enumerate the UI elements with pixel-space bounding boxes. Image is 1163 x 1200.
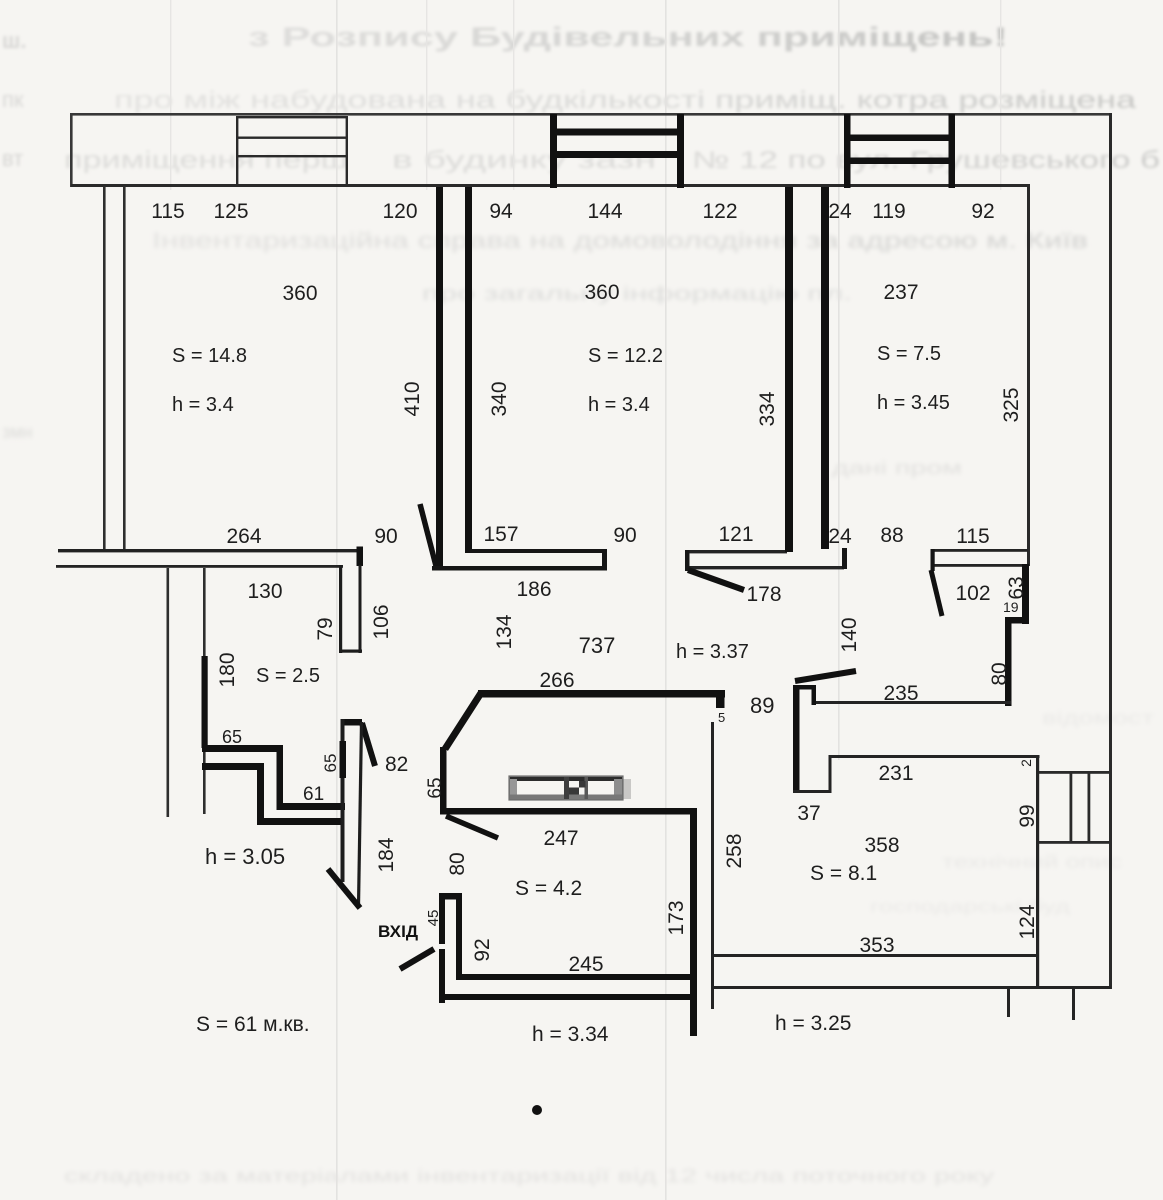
svg-text:змн: змн <box>2 422 33 442</box>
svg-text:2: 2 <box>1018 759 1034 767</box>
svg-text:340: 340 <box>488 381 511 416</box>
svg-text:94: 94 <box>489 200 513 223</box>
svg-text:з Розпису Будівельних приміщен: з Розпису Будівельних приміщень! <box>248 22 1008 52</box>
svg-text:186: 186 <box>516 578 551 601</box>
svg-text:h = 3.34: h = 3.34 <box>532 1023 609 1046</box>
svg-text:h = 3.4: h = 3.4 <box>172 394 234 416</box>
svg-text:178: 178 <box>746 583 781 606</box>
svg-text:відомост: відомост <box>1042 708 1154 728</box>
svg-text:S = 2.5: S = 2.5 <box>256 665 320 687</box>
svg-text:102: 102 <box>955 582 990 605</box>
svg-text:65: 65 <box>425 777 446 798</box>
svg-text:5: 5 <box>718 710 725 725</box>
svg-text:79: 79 <box>314 617 337 640</box>
svg-text:115: 115 <box>956 525 989 548</box>
svg-text:124: 124 <box>1016 904 1039 939</box>
svg-text:122: 122 <box>702 200 737 223</box>
svg-text:92: 92 <box>471 938 494 961</box>
svg-text:89: 89 <box>750 693 774 718</box>
svg-text:дані пром: дані пром <box>832 458 962 478</box>
svg-text:258: 258 <box>723 833 746 868</box>
svg-text:технічний опис: технічний опис <box>942 852 1122 872</box>
svg-text:пк: пк <box>2 87 24 112</box>
svg-text:господарські буд: господарські буд <box>870 897 1070 916</box>
svg-text:360: 360 <box>584 281 619 304</box>
svg-text:82: 82 <box>385 753 408 776</box>
svg-text:45: 45 <box>425 910 442 927</box>
svg-text:90: 90 <box>374 525 397 548</box>
svg-text:90: 90 <box>613 524 636 547</box>
svg-text:h = 3.4: h = 3.4 <box>588 394 650 416</box>
svg-text:125: 125 <box>213 200 248 223</box>
svg-text:184: 184 <box>375 837 398 872</box>
svg-text:S = 12.2: S = 12.2 <box>588 345 663 367</box>
svg-text:S = 4.2: S = 4.2 <box>515 877 582 900</box>
svg-text:144: 144 <box>587 200 622 223</box>
svg-text:h = 3.37: h = 3.37 <box>676 641 749 663</box>
svg-text:358: 358 <box>864 834 899 857</box>
svg-text:120: 120 <box>382 200 417 223</box>
svg-text:130: 130 <box>247 580 282 603</box>
svg-text:410: 410 <box>401 381 424 416</box>
svg-text:173: 173 <box>665 900 688 935</box>
svg-text:88: 88 <box>880 524 903 547</box>
svg-text:складено за матеріалами інвент: складено за матеріалами інвентаризації в… <box>64 1166 994 1186</box>
svg-text:приміщення перш: приміщення перш <box>64 147 348 174</box>
svg-text:80: 80 <box>446 852 469 875</box>
svg-text:S = 7.5: S = 7.5 <box>877 343 941 365</box>
svg-text:180: 180 <box>216 652 239 687</box>
svg-text:61: 61 <box>303 784 324 805</box>
svg-text:S = 14.8: S = 14.8 <box>172 345 247 367</box>
svg-text:Інвентаризаційна справа на дом: Інвентаризаційна справа на домоволодіння… <box>152 228 1088 253</box>
svg-text:24: 24 <box>828 200 852 223</box>
svg-text:119: 119 <box>872 200 905 223</box>
svg-text:h = 3.05: h = 3.05 <box>205 844 285 869</box>
svg-text:37: 37 <box>797 802 820 825</box>
svg-text:737: 737 <box>579 633 616 658</box>
svg-text:24: 24 <box>828 525 852 548</box>
svg-text:237: 237 <box>883 281 918 304</box>
svg-text:247: 247 <box>543 827 578 850</box>
svg-text:106: 106 <box>370 604 393 639</box>
svg-text:19: 19 <box>1003 599 1019 615</box>
svg-text:65: 65 <box>222 727 242 747</box>
svg-text:92: 92 <box>971 200 994 223</box>
svg-text:99: 99 <box>1016 804 1039 827</box>
svg-text:231: 231 <box>878 762 913 785</box>
svg-text:ш.: ш. <box>2 28 26 53</box>
svg-text:про між набудована на будкільк: про між набудована на будкількості примі… <box>114 87 1137 114</box>
svg-text:121: 121 <box>718 523 753 546</box>
svg-text:360: 360 <box>282 282 317 305</box>
svg-text:h = 3.45: h = 3.45 <box>877 392 950 414</box>
svg-text:245: 245 <box>568 953 603 976</box>
svg-text:134: 134 <box>493 614 516 649</box>
svg-text:S = 61 м.кв.: S = 61 м.кв. <box>196 1013 310 1036</box>
svg-text:264: 264 <box>226 525 261 548</box>
svg-text:63: 63 <box>1005 576 1028 599</box>
svg-text:вт: вт <box>2 146 23 171</box>
svg-text:334: 334 <box>756 391 779 426</box>
svg-text:353: 353 <box>859 934 894 957</box>
svg-text:325: 325 <box>1000 387 1023 422</box>
svg-text:80: 80 <box>988 662 1011 685</box>
svg-text:235: 235 <box>883 682 918 705</box>
svg-text:S = 8.1: S = 8.1 <box>810 862 877 885</box>
svg-text:115: 115 <box>151 200 184 223</box>
svg-text:65: 65 <box>321 754 340 773</box>
svg-text:266: 266 <box>539 669 574 692</box>
svg-text:140: 140 <box>838 617 861 652</box>
svg-text:157: 157 <box>483 523 518 546</box>
svg-text:h = 3.25: h = 3.25 <box>775 1012 851 1035</box>
svg-text:ВХІД: ВХІД <box>378 922 418 941</box>
